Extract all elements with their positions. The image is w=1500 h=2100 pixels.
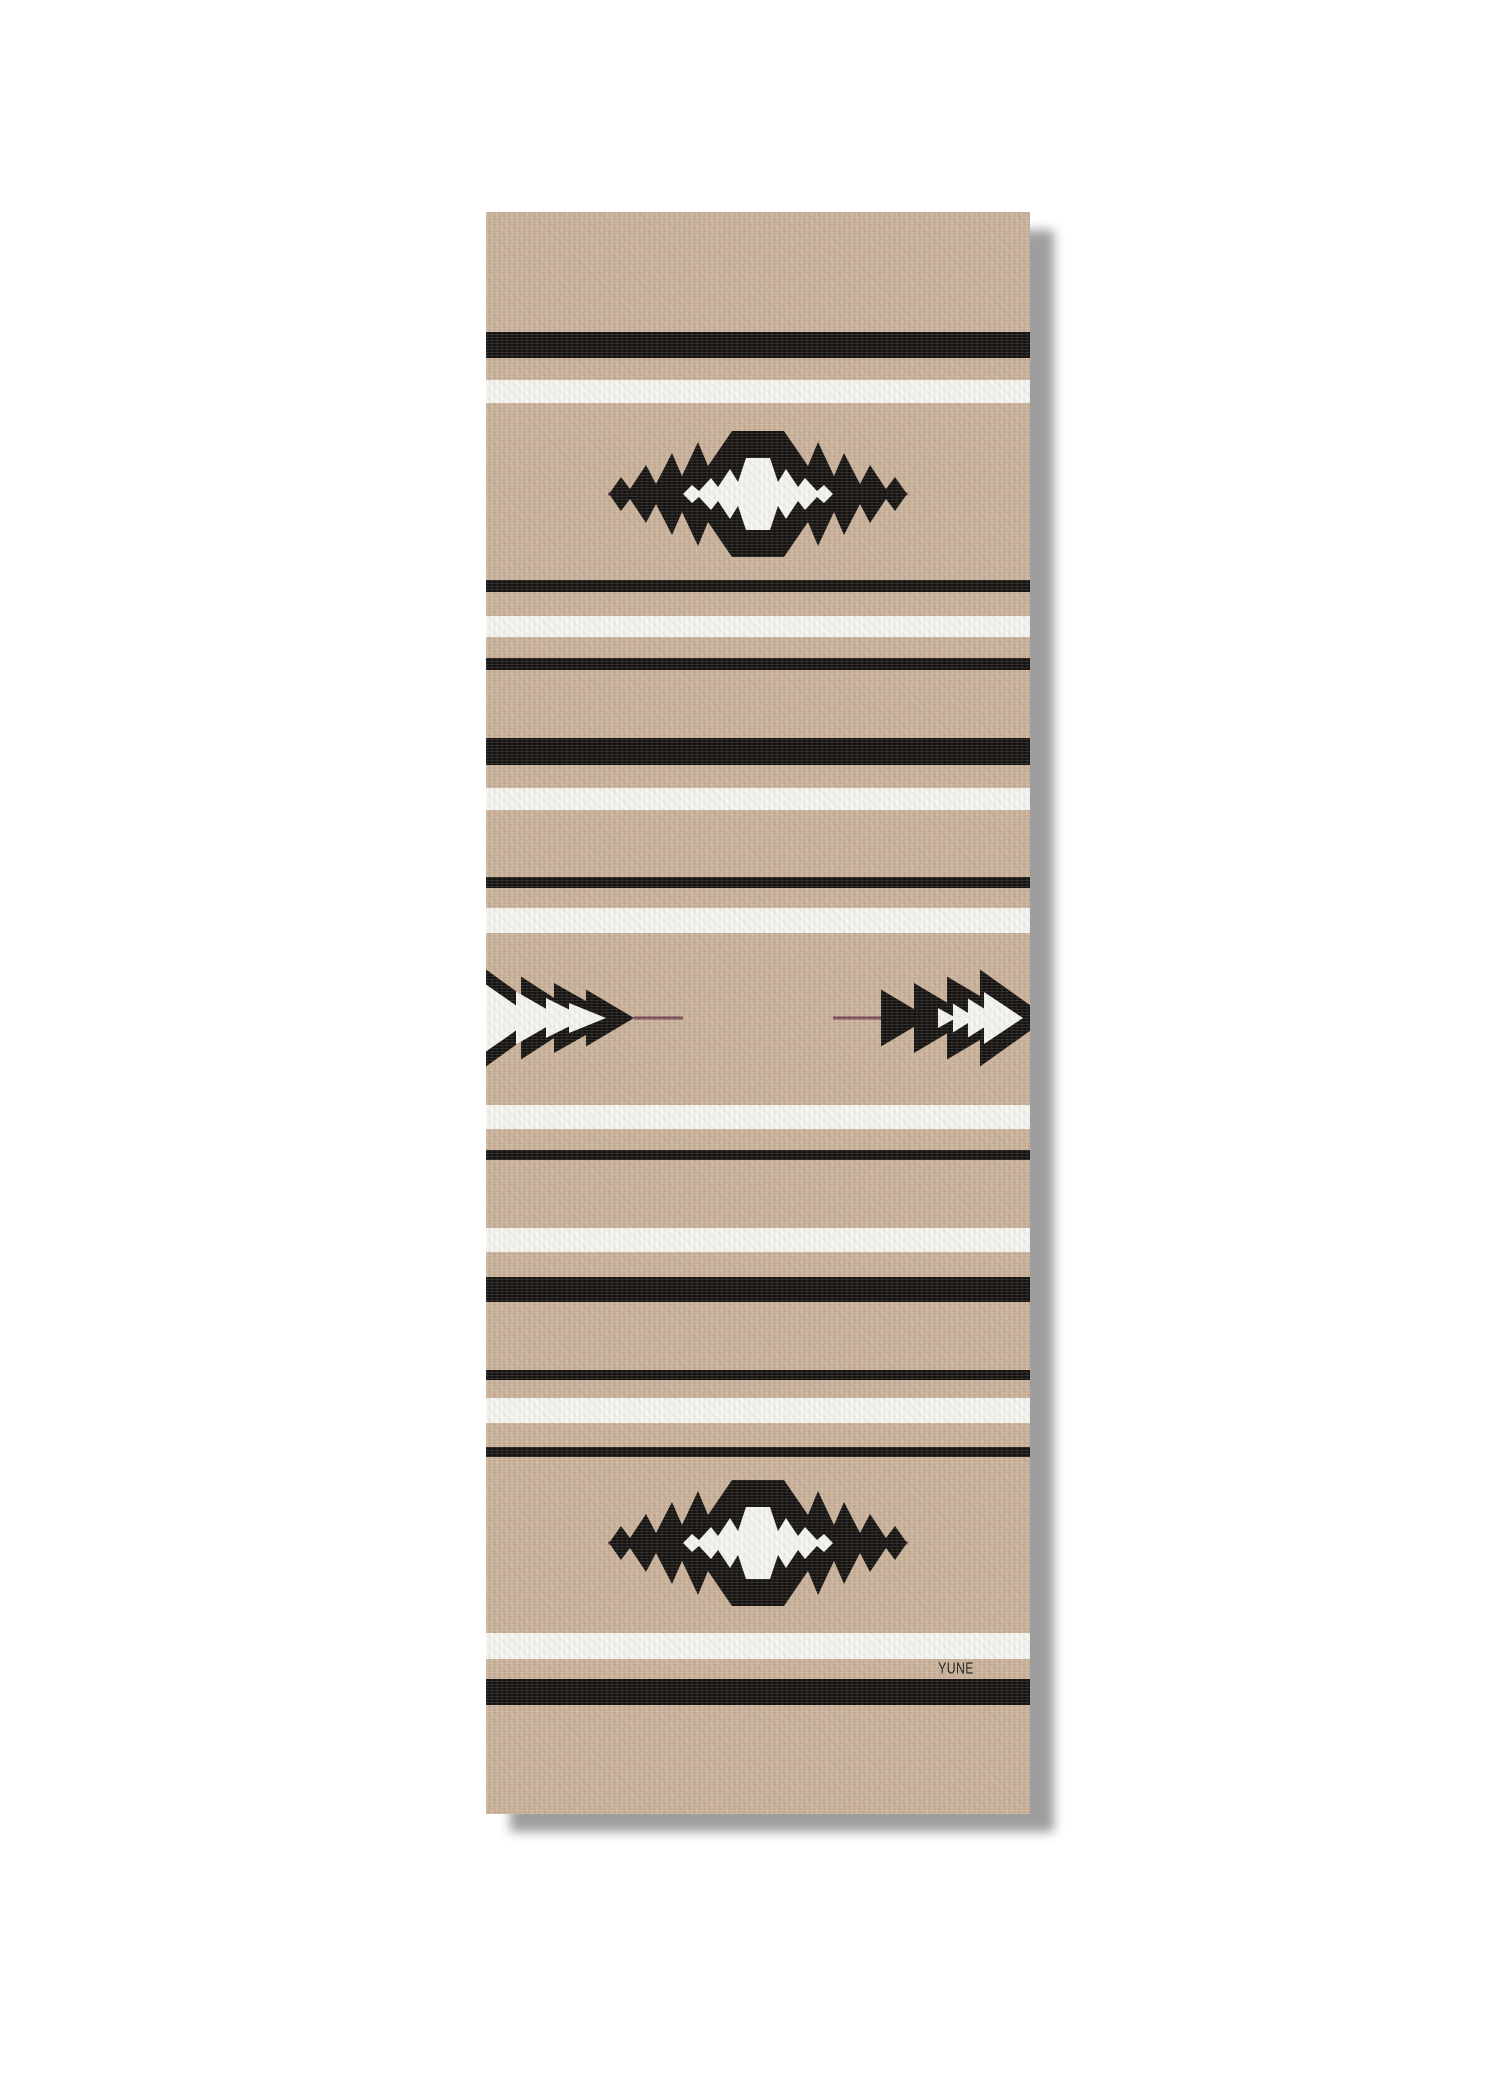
arrow-motif-left [486,968,686,1068]
brand-logo: YUNE [938,1660,974,1678]
black-stripe [486,877,1030,888]
accent-line-left-arrow [634,1017,683,1020]
white-stripe [486,1228,1030,1252]
black-stripe [486,1679,1030,1705]
white-stripe [486,616,1030,637]
white-stripe [486,788,1030,810]
black-stripe [486,738,1030,765]
diamond-motif [608,1479,908,1607]
yoga-mat: YUNE [486,212,1030,1814]
black-stripe [486,580,1030,592]
white-stripe [486,1398,1030,1423]
black-stripe [486,658,1030,670]
black-stripe [486,332,1030,358]
diamond-motif [608,430,908,558]
white-stripe [486,380,1030,403]
black-stripe [486,1150,1030,1160]
white-stripe [486,1633,1030,1659]
black-stripe [486,1447,1030,1457]
black-stripe [486,1370,1030,1380]
white-stripe [486,908,1030,933]
accent-line-right-arrow [833,1017,881,1020]
white-stripe [486,1105,1030,1129]
page-background: YUNE [0,0,1500,2100]
arrow-motif-right [831,968,1030,1068]
black-stripe [486,1277,1030,1302]
